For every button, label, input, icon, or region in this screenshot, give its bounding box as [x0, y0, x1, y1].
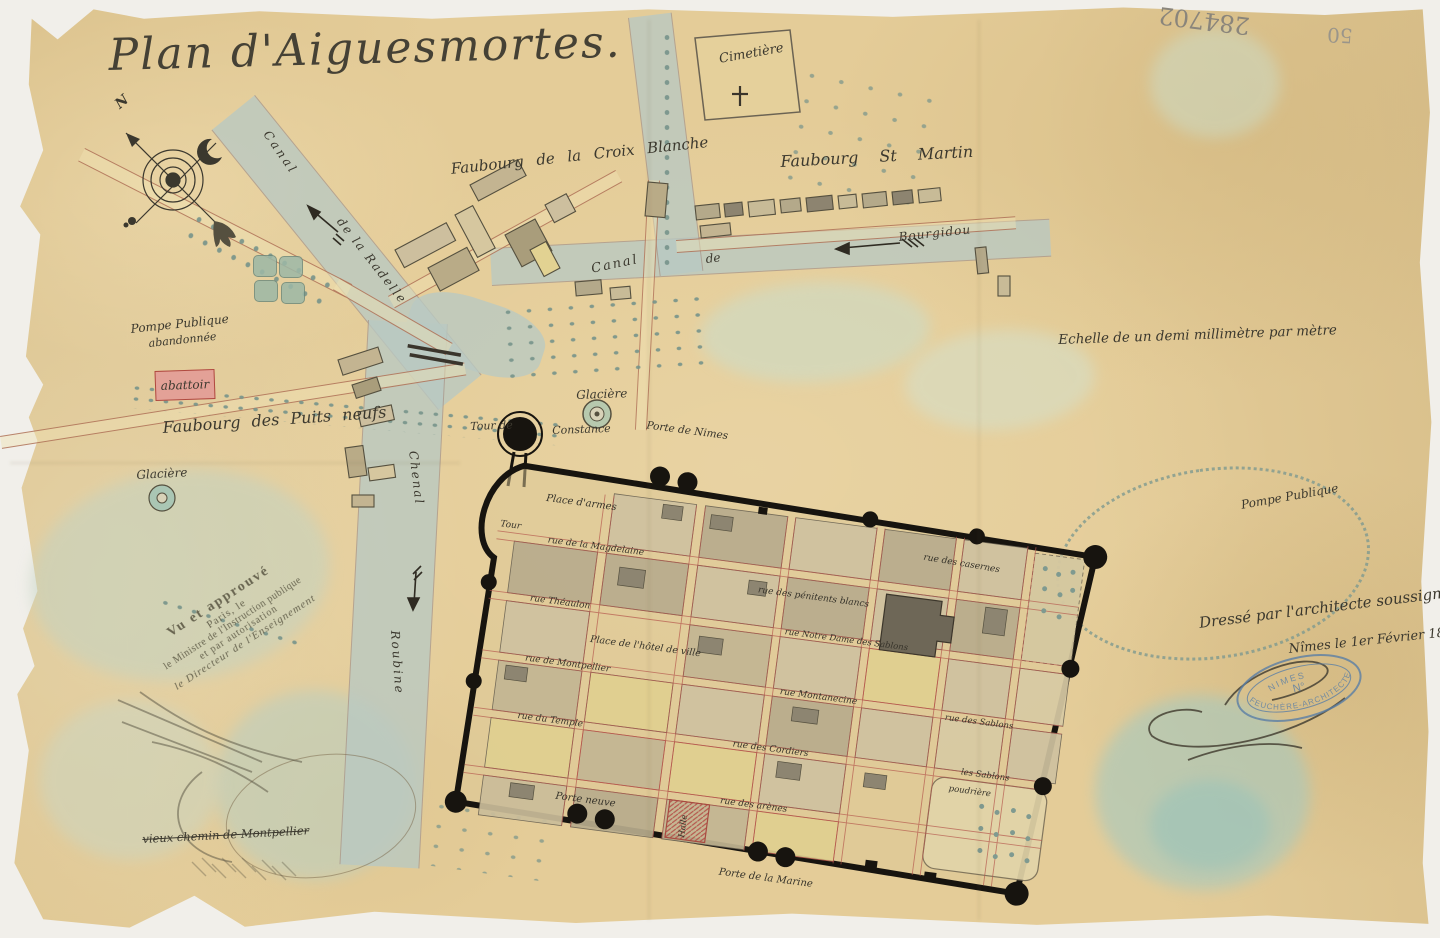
glaciere-nord-label: Glacière — [576, 386, 628, 402]
glaciere-ouest-label: Glacière — [136, 465, 188, 482]
fold-crease — [978, 20, 980, 920]
archive-pencil-number-2: 50 — [1327, 23, 1354, 48]
crescent-icon — [197, 139, 222, 165]
walled-city-aigues-mortes: Place d'armes Tour Porte de Nimes rue de… — [407, 418, 1162, 938]
tour-de-constance-label-1: Tour de — [470, 419, 513, 433]
orchard-grid — [497, 291, 707, 390]
garden-plot — [254, 280, 278, 302]
southwest-knob — [124, 217, 137, 228]
abattoir-building: abattoir — [154, 369, 215, 401]
garden-plot — [281, 282, 305, 304]
abattoir-label: abattoir — [161, 377, 210, 393]
tour-de-constance-label-2: Constance — [552, 422, 611, 437]
fold-crease — [10, 462, 460, 464]
compass-rose-icon — [88, 95, 258, 265]
fold-crease — [648, 20, 650, 920]
feather-icon — [213, 221, 236, 247]
city-plan — [407, 418, 1162, 938]
garden-plot — [279, 256, 303, 278]
stamp-number-text: N° — [1292, 681, 1307, 696]
meadow-wash — [1150, 28, 1280, 138]
canal-bourgidou-label-2: de — [705, 250, 721, 265]
map-sheet: Place d'armes Tour Porte de Nimes rue de… — [0, 0, 1440, 938]
pond-wash — [1150, 780, 1270, 870]
